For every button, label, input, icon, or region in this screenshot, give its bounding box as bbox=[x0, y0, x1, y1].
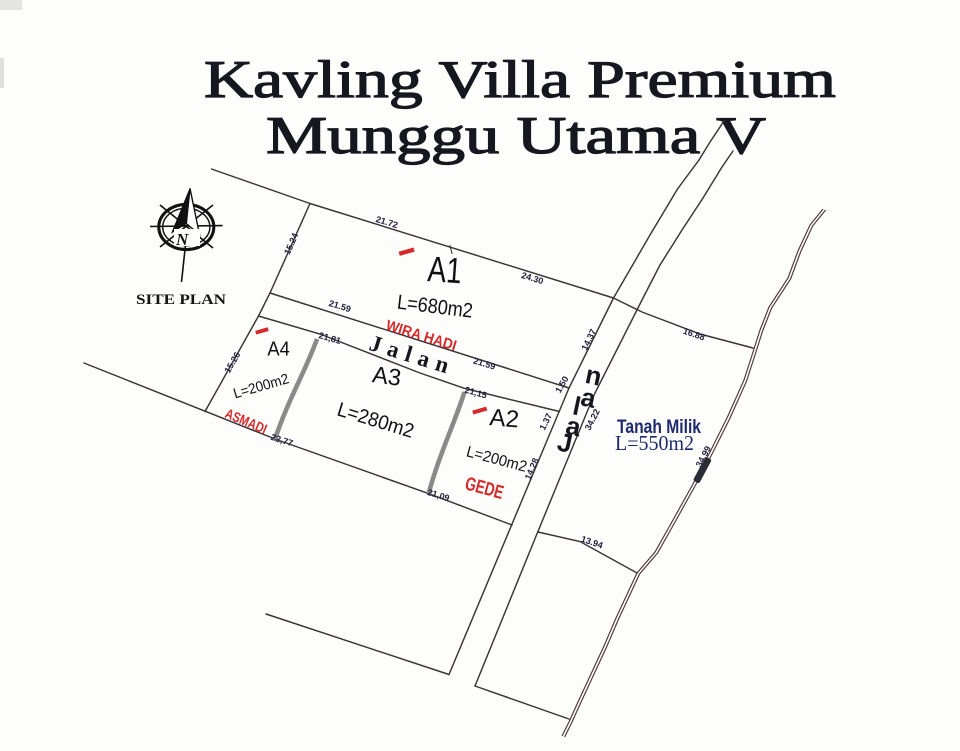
svg-text:SITE PLAN: SITE PLAN bbox=[136, 292, 226, 308]
svg-text:N: N bbox=[175, 230, 189, 249]
svg-text:A1: A1 bbox=[426, 248, 463, 291]
svg-text:A3: A3 bbox=[371, 361, 403, 391]
svg-text:Munggu Utama V: Munggu Utama V bbox=[266, 107, 766, 165]
svg-text:A4: A4 bbox=[267, 338, 290, 361]
svg-text:L=550m2: L=550m2 bbox=[615, 431, 694, 455]
svg-text:Kavling Villa Premium: Kavling Villa Premium bbox=[204, 51, 836, 109]
svg-text:A2: A2 bbox=[488, 404, 520, 433]
